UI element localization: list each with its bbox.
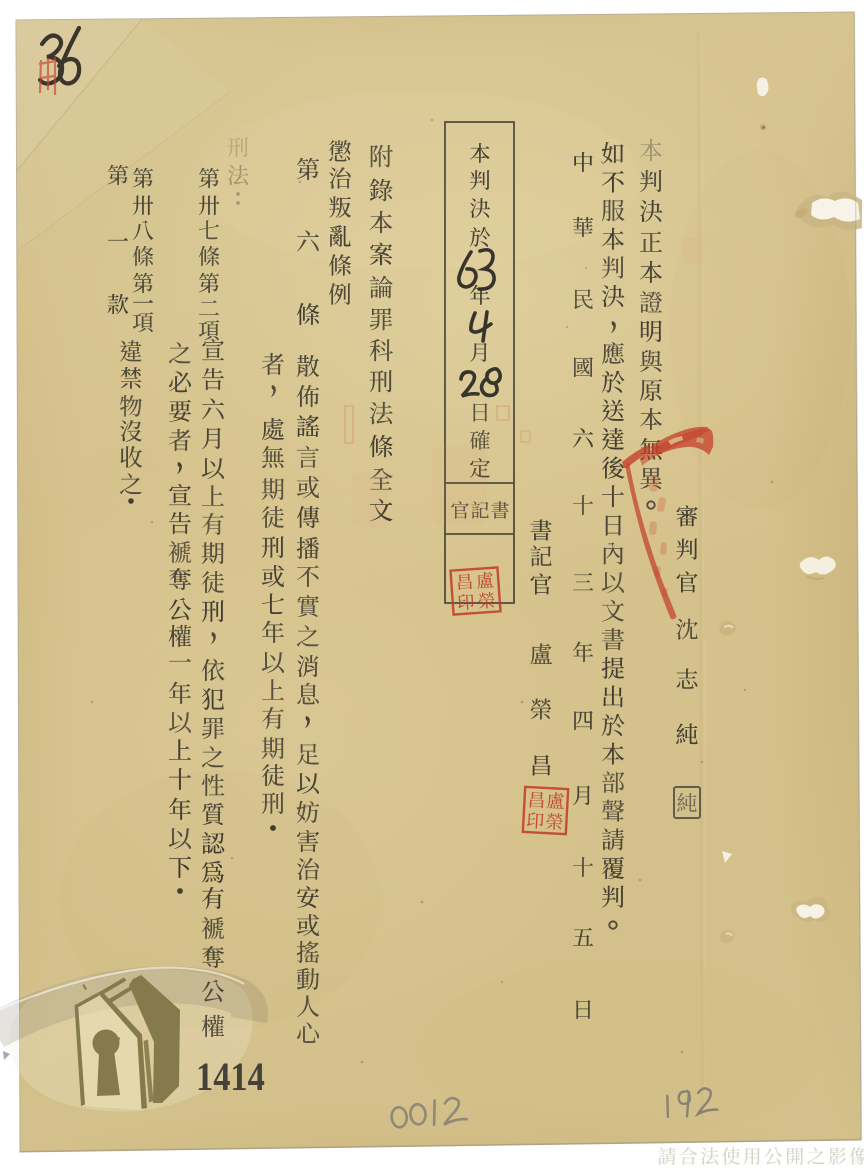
svg-text:1414: 1414 bbox=[196, 1056, 265, 1100]
